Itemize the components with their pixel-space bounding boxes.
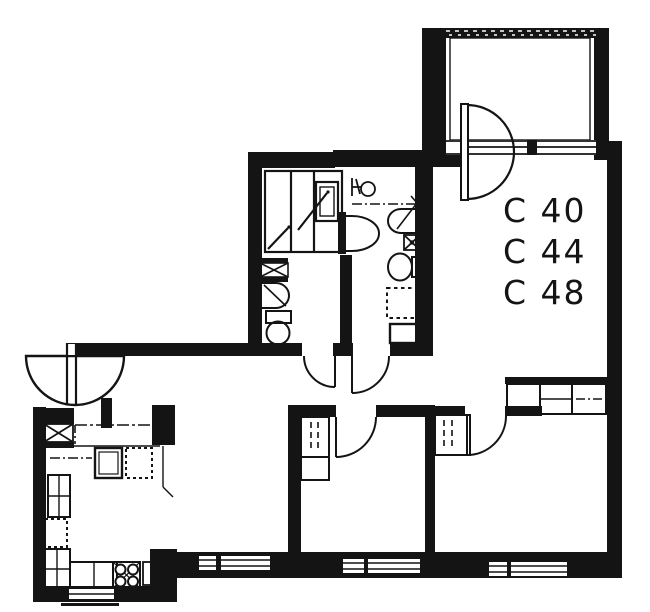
balcony-left-wall bbox=[422, 28, 446, 160]
bedroom1-top-wall-right bbox=[376, 405, 427, 417]
window-mullion bbox=[527, 140, 537, 155]
living-bedroom-wall bbox=[288, 405, 301, 560]
balcony-right-wall bbox=[594, 28, 609, 143]
kitchen-window-sill bbox=[61, 603, 119, 606]
unit-label-c48: C 48 bbox=[503, 273, 587, 312]
bedroom1-top-wall-left bbox=[288, 405, 336, 417]
unit-label-c44: C 44 bbox=[503, 232, 587, 271]
kitchen-window bbox=[61, 589, 119, 606]
unit-label-c40: C 40 bbox=[503, 191, 587, 230]
bath-bottom-wall bbox=[390, 343, 433, 356]
living-window bbox=[199, 556, 270, 570]
unit-labels: C 40 C 44 C 48 bbox=[503, 191, 587, 312]
bedroom2-window bbox=[489, 562, 567, 576]
balcony-door-leaf bbox=[461, 104, 468, 200]
bedroom1-window bbox=[343, 559, 420, 573]
living-top-wall bbox=[333, 150, 463, 167]
floor-plan-page: C 40 C 44 C 48 bbox=[0, 0, 650, 612]
bath-block-left-wall bbox=[248, 152, 262, 345]
hall-top-wall bbox=[66, 343, 302, 356]
shaft-cap-top bbox=[43, 408, 74, 424]
floor-plan-drawing: C 40 C 44 C 48 bbox=[0, 0, 650, 612]
wc-bath-divider-wall bbox=[340, 255, 352, 343]
kitchen-wall-stub bbox=[152, 405, 175, 445]
closet-back-wall bbox=[505, 377, 608, 384]
bath-door-post bbox=[333, 343, 353, 356]
right-exterior-wall bbox=[607, 141, 622, 578]
bedroom-divider-wall bbox=[425, 405, 435, 560]
entry-wall-stub bbox=[101, 398, 112, 428]
